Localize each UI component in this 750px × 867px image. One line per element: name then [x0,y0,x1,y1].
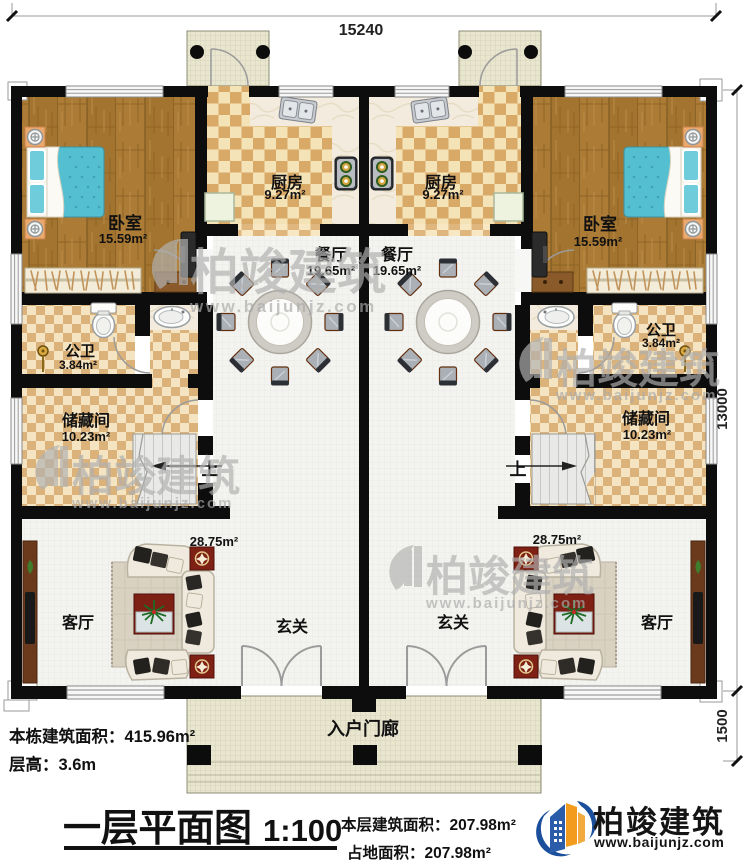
svg-text:层高：3.6m: 层高：3.6m [9,754,96,774]
svg-text:www.baijunjz.com: www.baijunjz.com [555,387,717,404]
svg-text:28.75m²: 28.75m² [533,532,582,547]
svg-text:柏竣建筑: 柏竣建筑 [72,453,240,500]
svg-text:3.84m²: 3.84m² [59,358,97,372]
svg-text:15240: 15240 [339,22,384,39]
svg-text:客厅: 客厅 [62,613,94,632]
svg-text:本栋建筑面积：415.96m²: 本栋建筑面积：415.96m² [9,726,196,746]
svg-text:1:100: 1:100 [263,813,342,848]
svg-text:28.75m²: 28.75m² [190,534,239,549]
svg-text:本层建筑面积：207.98m²: 本层建筑面积：207.98m² [341,815,516,834]
svg-text:占地面积：207.98m²: 占地面积：207.98m² [347,843,491,862]
svg-text:客厅: 客厅 [641,613,673,632]
svg-text:9.27m²: 9.27m² [422,187,464,202]
svg-text:10.23m²: 10.23m² [62,429,111,444]
svg-text:柏竣建筑: 柏竣建筑 [426,553,594,600]
svg-text:10.23m²: 10.23m² [623,427,672,442]
svg-text:15.59m²: 15.59m² [574,234,623,249]
svg-text:储藏间: 储藏间 [621,409,670,428]
svg-text:储藏间: 储藏间 [61,411,110,430]
svg-text:玄关: 玄关 [437,613,469,632]
svg-text:玄关: 玄关 [276,617,308,636]
svg-text:柏竣建筑: 柏竣建筑 [190,246,386,300]
svg-text:www.baijunjz.com: www.baijunjz.com [425,595,587,612]
svg-text:入户门廊: 入户门廊 [327,718,399,739]
svg-text:卧室: 卧室 [108,213,142,233]
svg-text:9.27m²: 9.27m² [264,187,306,202]
svg-text:上: 上 [510,460,527,479]
svg-text:15.59m²: 15.59m² [99,231,148,246]
svg-text:卧室: 卧室 [583,214,617,234]
svg-text:www.baijunjz.com: www.baijunjz.com [71,495,233,512]
svg-text:www.baijunjz.com: www.baijunjz.com [593,834,724,850]
svg-text:一层平面图: 一层平面图 [63,808,252,850]
svg-text:www.baijunjz.com: www.baijunjz.com [189,297,377,316]
svg-text:1500: 1500 [714,709,731,742]
svg-text:柏竣建筑: 柏竣建筑 [556,346,720,392]
